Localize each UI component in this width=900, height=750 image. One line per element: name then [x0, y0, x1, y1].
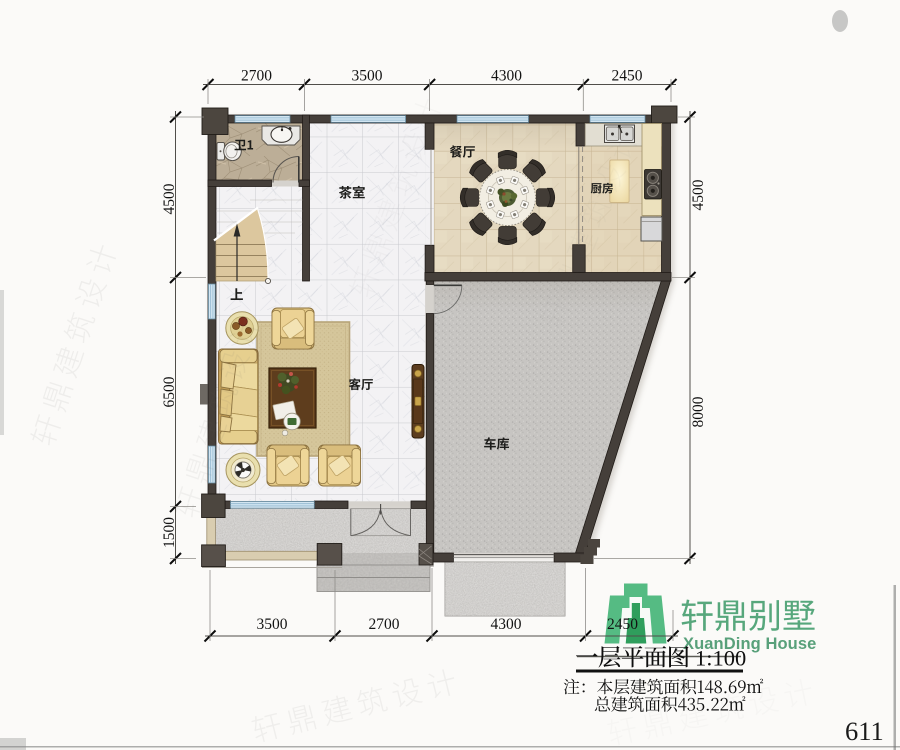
svg-text:1500: 1500: [161, 517, 178, 548]
svg-text:2700: 2700: [369, 616, 400, 633]
svg-text:8000: 8000: [690, 396, 707, 427]
svg-text:3500: 3500: [257, 616, 288, 633]
svg-text:611: 611: [845, 716, 884, 746]
svg-text:4300: 4300: [491, 68, 522, 85]
svg-text:4300: 4300: [491, 616, 522, 633]
svg-text:2450: 2450: [607, 616, 638, 633]
svg-text:3500: 3500: [352, 68, 383, 85]
svg-text:4500: 4500: [161, 183, 178, 214]
svg-text:4500: 4500: [690, 179, 707, 210]
svg-text:1:100: 1:100: [695, 646, 746, 671]
svg-text:6500: 6500: [161, 376, 178, 407]
svg-text:2450: 2450: [612, 68, 643, 85]
svg-text:2700: 2700: [241, 68, 272, 85]
